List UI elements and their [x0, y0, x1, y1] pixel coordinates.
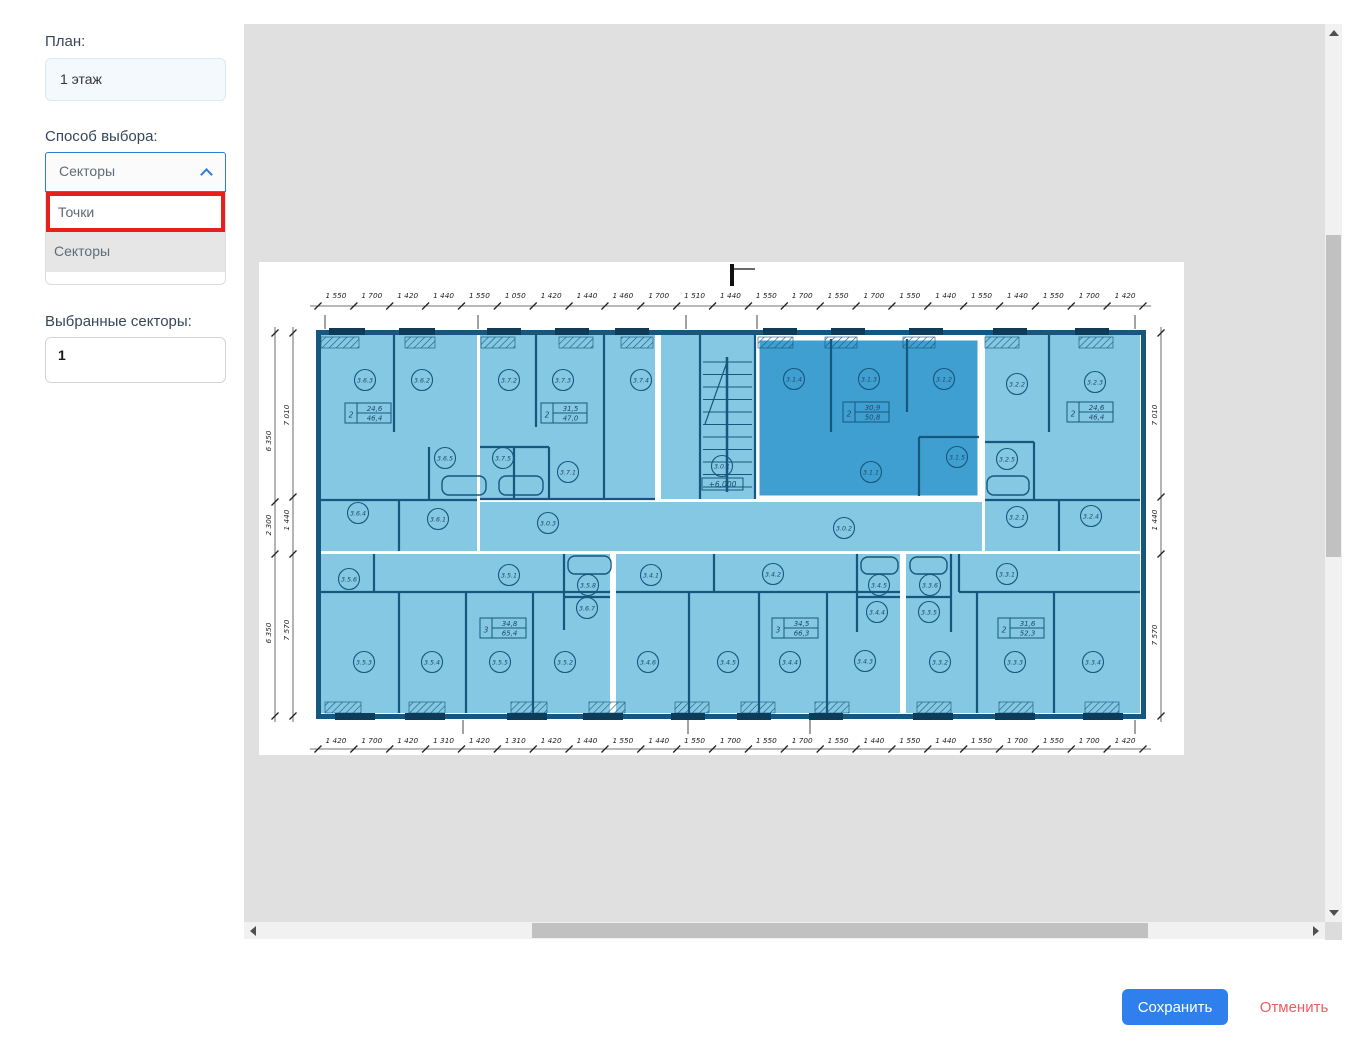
dropdown-option-sektory[interactable]: Секторы [46, 232, 225, 272]
svg-text:3.4.1: 3.4.1 [643, 572, 659, 579]
svg-text:1 550: 1 550 [828, 291, 849, 300]
svg-text:1 310: 1 310 [505, 736, 526, 745]
svg-text:3.6.2: 3.6.2 [414, 377, 430, 384]
svg-text:1 440: 1 440 [433, 291, 454, 300]
svg-text:3.4.4: 3.4.4 [782, 659, 798, 666]
svg-text:3.0.1: 3.0.1 [714, 463, 730, 470]
svg-text:3.6.7: 3.6.7 [579, 605, 595, 612]
svg-text:1 700: 1 700 [648, 291, 669, 300]
svg-text:1 550: 1 550 [469, 291, 490, 300]
dimension-chain: 1 4201 7001 4201 3101 4201 3101 4201 440… [310, 736, 1151, 753]
svg-text:3.3.2: 3.3.2 [932, 659, 948, 666]
svg-text:1 550: 1 550 [899, 736, 920, 745]
svg-text:3.1.3: 3.1.3 [861, 376, 877, 383]
svg-text:1 420: 1 420 [397, 291, 418, 300]
cancel-button[interactable]: Отменить [1252, 996, 1336, 1018]
plan-viewport: 3.6.33.6.23.7.23.7.33.7.43.6.53.7.53.7.1… [244, 24, 1325, 922]
svg-text:2 300: 2 300 [264, 514, 273, 535]
svg-text:1 550: 1 550 [684, 736, 705, 745]
svg-text:1 050: 1 050 [505, 291, 526, 300]
svg-text:1 700: 1 700 [361, 291, 382, 300]
svg-text:3.3.1: 3.3.1 [999, 571, 1015, 578]
floor-plan-svg: 3.6.33.6.23.7.23.7.33.7.43.6.53.7.53.7.1… [259, 262, 1184, 755]
dropdown-option-tochki[interactable]: Точки [46, 192, 225, 232]
svg-text:+6,000: +6,000 [709, 480, 737, 489]
svg-text:1 440: 1 440 [935, 736, 956, 745]
svg-text:1 510: 1 510 [684, 291, 705, 300]
svg-text:7 010: 7 010 [1150, 404, 1159, 425]
svg-text:3.5.3: 3.5.3 [356, 659, 372, 666]
svg-text:1 440: 1 440 [935, 291, 956, 300]
svg-text:34,5: 34,5 [794, 620, 810, 628]
horizontal-scrollbar-thumb[interactable] [532, 923, 1148, 938]
svg-text:1 310: 1 310 [433, 736, 454, 745]
svg-text:1 550: 1 550 [612, 736, 633, 745]
svg-text:3.5.6: 3.5.6 [341, 576, 357, 583]
svg-text:3.1.4: 3.1.4 [786, 376, 802, 383]
svg-text:1 440: 1 440 [648, 736, 669, 745]
svg-text:1 550: 1 550 [1043, 291, 1064, 300]
svg-text:3.5.1: 3.5.1 [501, 572, 517, 579]
svg-text:3.0.2: 3.0.2 [836, 525, 852, 532]
svg-text:7 570: 7 570 [282, 619, 291, 640]
method-select-value: Секторы [59, 163, 115, 179]
scroll-up-icon[interactable] [1329, 30, 1339, 36]
svg-text:3.3.6: 3.3.6 [922, 582, 938, 589]
svg-text:1 440: 1 440 [1007, 291, 1028, 300]
plan-value-box[interactable]: 1 этаж [45, 58, 226, 101]
scroll-left-icon[interactable] [250, 926, 256, 936]
svg-text:3: 3 [776, 626, 781, 635]
section-mark-icon [732, 264, 755, 286]
svg-text:3: 3 [484, 626, 489, 635]
svg-text:1 700: 1 700 [864, 291, 885, 300]
svg-text:46,4: 46,4 [367, 415, 383, 423]
svg-text:1 550: 1 550 [756, 291, 777, 300]
svg-text:3.7.3: 3.7.3 [555, 377, 571, 384]
vertical-scrollbar-thumb[interactable] [1326, 235, 1341, 557]
dimension-chain-vertical: 7 0101 4407 570 [1150, 327, 1165, 722]
svg-text:6 350: 6 350 [264, 622, 273, 643]
svg-text:3.2.4: 3.2.4 [1083, 513, 1099, 520]
svg-text:34,8: 34,8 [502, 620, 518, 628]
svg-text:1 700: 1 700 [1007, 736, 1028, 745]
dimension-chain: 1 5501 7001 4201 4401 5501 0501 4201 440… [310, 291, 1151, 310]
svg-text:3.0.3: 3.0.3 [540, 520, 556, 527]
svg-text:31,5: 31,5 [563, 405, 579, 413]
svg-text:3.3.5: 3.3.5 [921, 609, 937, 616]
svg-text:3.6.4: 3.6.4 [350, 510, 366, 517]
selected-sectors-label: Выбранные секторы: [45, 313, 192, 330]
scroll-right-icon[interactable] [1313, 926, 1319, 936]
svg-text:2: 2 [1071, 410, 1076, 419]
svg-text:3.6.1: 3.6.1 [430, 516, 446, 523]
svg-text:3.5.2: 3.5.2 [557, 659, 573, 666]
svg-text:3.2.1: 3.2.1 [1009, 514, 1025, 521]
sidebar: План: 1 этаж Способ выбора: Секторы Точк… [0, 0, 244, 1044]
svg-text:1 420: 1 420 [1115, 736, 1136, 745]
svg-text:24,6: 24,6 [1089, 404, 1105, 412]
svg-text:31,6: 31,6 [1020, 620, 1036, 628]
scroll-down-icon[interactable] [1329, 910, 1339, 916]
svg-text:1 440: 1 440 [720, 291, 741, 300]
method-label: Способ выбора: [45, 128, 158, 145]
svg-text:3.4.4: 3.4.4 [869, 609, 885, 616]
svg-text:3.1.5: 3.1.5 [949, 454, 965, 461]
svg-text:1 440: 1 440 [577, 291, 598, 300]
svg-text:1 420: 1 420 [325, 736, 346, 745]
svg-text:1 700: 1 700 [1079, 291, 1100, 300]
svg-text:1 420: 1 420 [1115, 291, 1136, 300]
svg-text:3.3.3: 3.3.3 [1007, 659, 1023, 666]
svg-text:3.4.5: 3.4.5 [720, 659, 736, 666]
svg-text:3.5.4: 3.5.4 [424, 659, 440, 666]
svg-text:3.6.5: 3.6.5 [437, 455, 453, 462]
svg-text:1 550: 1 550 [899, 291, 920, 300]
svg-text:1 550: 1 550 [971, 291, 992, 300]
svg-text:1 440: 1 440 [577, 736, 598, 745]
svg-text:1 700: 1 700 [1079, 736, 1100, 745]
method-select[interactable]: Секторы [45, 152, 226, 192]
svg-text:3.7.2: 3.7.2 [501, 377, 517, 384]
svg-text:7 570: 7 570 [1150, 624, 1159, 645]
svg-text:1 700: 1 700 [361, 736, 382, 745]
svg-text:1 700: 1 700 [720, 736, 741, 745]
svg-text:66,3: 66,3 [794, 630, 810, 638]
svg-text:3.2.3: 3.2.3 [1087, 379, 1103, 386]
svg-text:30,9: 30,9 [865, 404, 881, 412]
svg-text:46,4: 46,4 [1089, 414, 1105, 422]
svg-text:1 550: 1 550 [325, 291, 346, 300]
method-dropdown: Точки Секторы [45, 192, 226, 285]
svg-text:65,4: 65,4 [502, 630, 518, 638]
svg-text:3.7.1: 3.7.1 [560, 469, 576, 476]
svg-text:1 460: 1 460 [612, 291, 633, 300]
svg-text:2: 2 [545, 411, 550, 420]
svg-text:1 550: 1 550 [828, 736, 849, 745]
svg-text:3.7.5: 3.7.5 [495, 455, 511, 462]
svg-text:1 420: 1 420 [541, 291, 562, 300]
svg-text:3.1.1: 3.1.1 [863, 469, 879, 476]
svg-text:3.5.8: 3.5.8 [580, 582, 596, 589]
svg-text:3.4.2: 3.4.2 [765, 571, 781, 578]
svg-text:3.2.5: 3.2.5 [999, 456, 1015, 463]
svg-text:1 420: 1 420 [469, 736, 490, 745]
svg-text:1 440: 1 440 [282, 509, 291, 530]
svg-text:52,3: 52,3 [1020, 630, 1036, 638]
svg-text:1 550: 1 550 [1043, 736, 1064, 745]
svg-text:3.2.2: 3.2.2 [1009, 381, 1025, 388]
svg-text:1 420: 1 420 [397, 736, 418, 745]
svg-text:2: 2 [1002, 626, 1007, 635]
svg-text:50,8: 50,8 [865, 414, 881, 422]
svg-text:3.7.4: 3.7.4 [633, 377, 649, 384]
svg-text:3.1.2: 3.1.2 [936, 376, 952, 383]
svg-text:3.3.4: 3.3.4 [1085, 659, 1101, 666]
chevron-up-icon [200, 168, 213, 181]
svg-text:1 550: 1 550 [971, 736, 992, 745]
svg-text:1 700: 1 700 [792, 736, 813, 745]
svg-text:1 420: 1 420 [541, 736, 562, 745]
scrollbar-corner [1325, 922, 1342, 940]
dimension-chain-vertical: 6 3502 3006 350 [264, 327, 279, 722]
svg-text:2: 2 [349, 411, 354, 420]
svg-text:2: 2 [847, 410, 852, 419]
floor-plan-canvas[interactable]: 3.6.33.6.23.7.23.7.33.7.43.6.53.7.53.7.1… [259, 262, 1184, 755]
selected-sectors-box[interactable]: 1 [45, 337, 226, 383]
svg-text:1 440: 1 440 [864, 736, 885, 745]
svg-text:3.4.6: 3.4.6 [640, 659, 656, 666]
dimension-chain-vertical: 7 0101 4407 570 [282, 327, 297, 722]
svg-text:7 010: 7 010 [282, 404, 291, 425]
svg-text:24,6: 24,6 [367, 405, 383, 413]
plan-label: План: [45, 33, 85, 50]
svg-text:1 550: 1 550 [756, 736, 777, 745]
svg-text:3.4.3: 3.4.3 [857, 658, 873, 665]
svg-text:3.4.5: 3.4.5 [871, 582, 887, 589]
svg-text:6 350: 6 350 [264, 430, 273, 451]
save-button[interactable]: Сохранить [1122, 989, 1228, 1025]
svg-text:3.5.5: 3.5.5 [492, 659, 508, 666]
svg-text:1 440: 1 440 [1150, 509, 1159, 530]
svg-text:47,0: 47,0 [563, 415, 579, 423]
svg-text:1 700: 1 700 [792, 291, 813, 300]
svg-text:3.6.3: 3.6.3 [357, 377, 373, 384]
